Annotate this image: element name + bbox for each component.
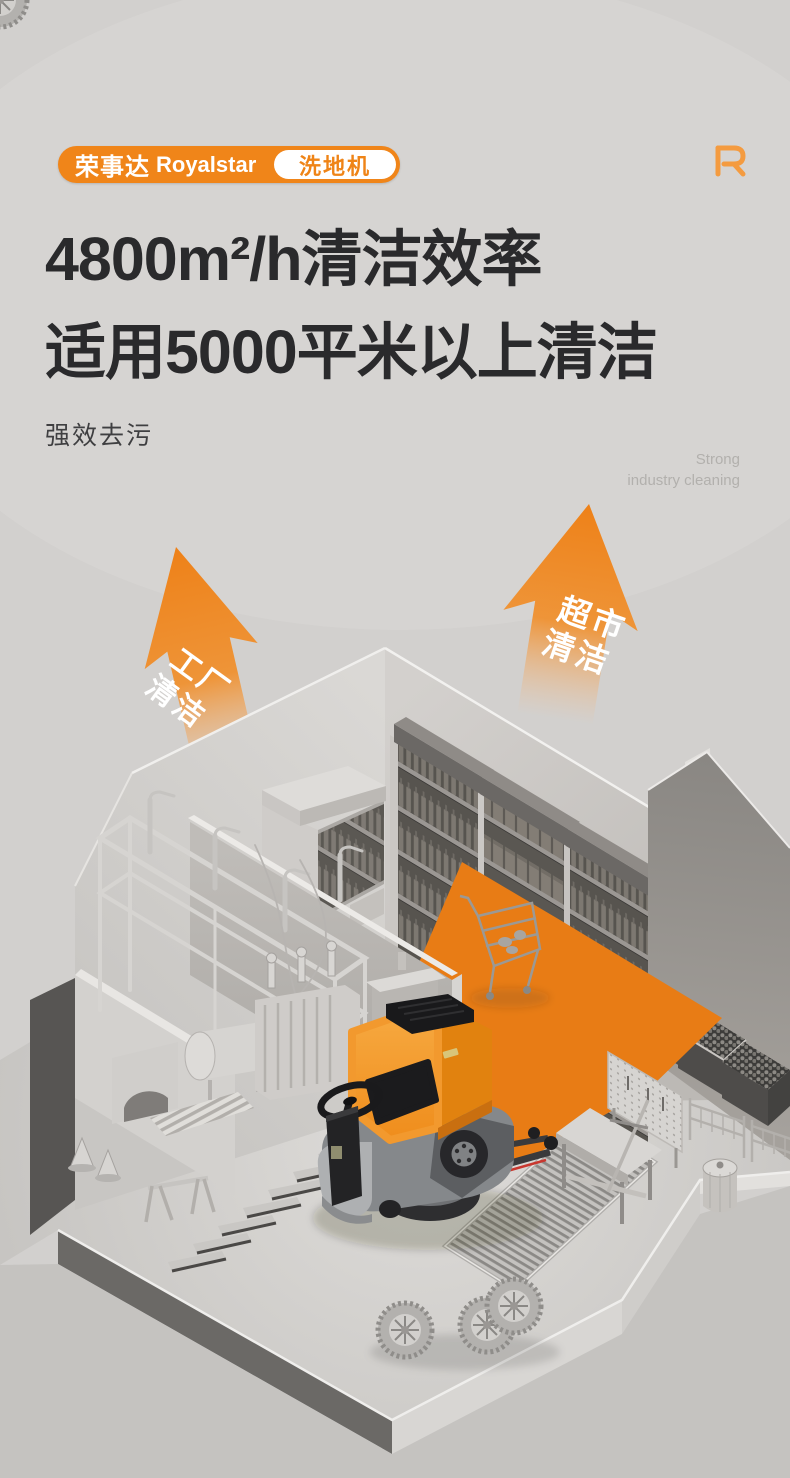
brand-name-en: Royalstar <box>156 152 256 178</box>
headline: 4800m²/h清洁效率 适用5000平米以上清洁 <box>45 213 745 399</box>
royalstar-r-icon <box>710 140 750 180</box>
headline-line1: 4800m²/h清洁效率 <box>45 213 745 306</box>
brand-name-cn: 荣事达 <box>75 147 150 182</box>
subtitle-cn: 强效去污 <box>45 416 153 452</box>
headline-line2: 适用5000平米以上清洁 <box>45 306 745 399</box>
product-tag: 洗地机 <box>274 150 396 179</box>
subtitle-en-line1: Strong <box>627 449 740 470</box>
subtitle-en-line2: industry cleaning <box>627 470 740 491</box>
barrel <box>703 1159 737 1213</box>
subtitle-en: Strong industry cleaning <box>627 449 740 491</box>
brand-badge: 荣事达 Royalstar 洗地机 <box>58 146 400 183</box>
